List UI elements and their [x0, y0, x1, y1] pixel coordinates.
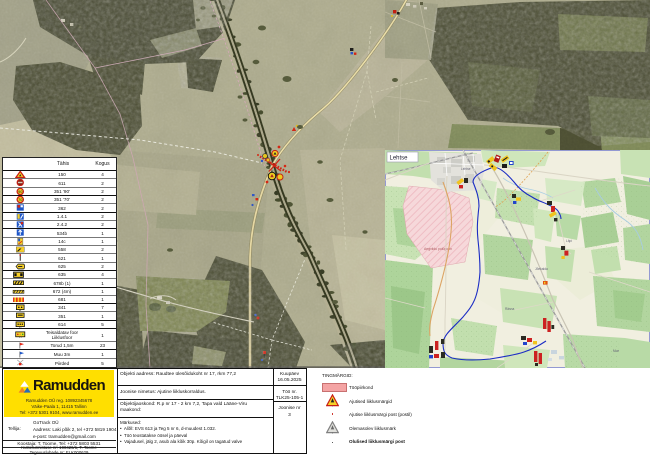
- svg-text:90: 90: [18, 190, 22, 194]
- svg-text:Räsna: Räsna: [505, 307, 514, 311]
- svg-text:Läpi: Läpi: [566, 239, 572, 243]
- svg-text:70: 70: [18, 198, 22, 202]
- svg-text:Jõekalda: Jõekalda: [535, 267, 548, 271]
- svg-text:Moe: Moe: [613, 349, 619, 353]
- svg-text:Lehtse: Lehtse: [390, 156, 409, 162]
- svg-text:Aegviidu polügoon: Aegviidu polügoon: [424, 247, 452, 251]
- svg-text:Lehtse: Lehtse: [461, 167, 471, 171]
